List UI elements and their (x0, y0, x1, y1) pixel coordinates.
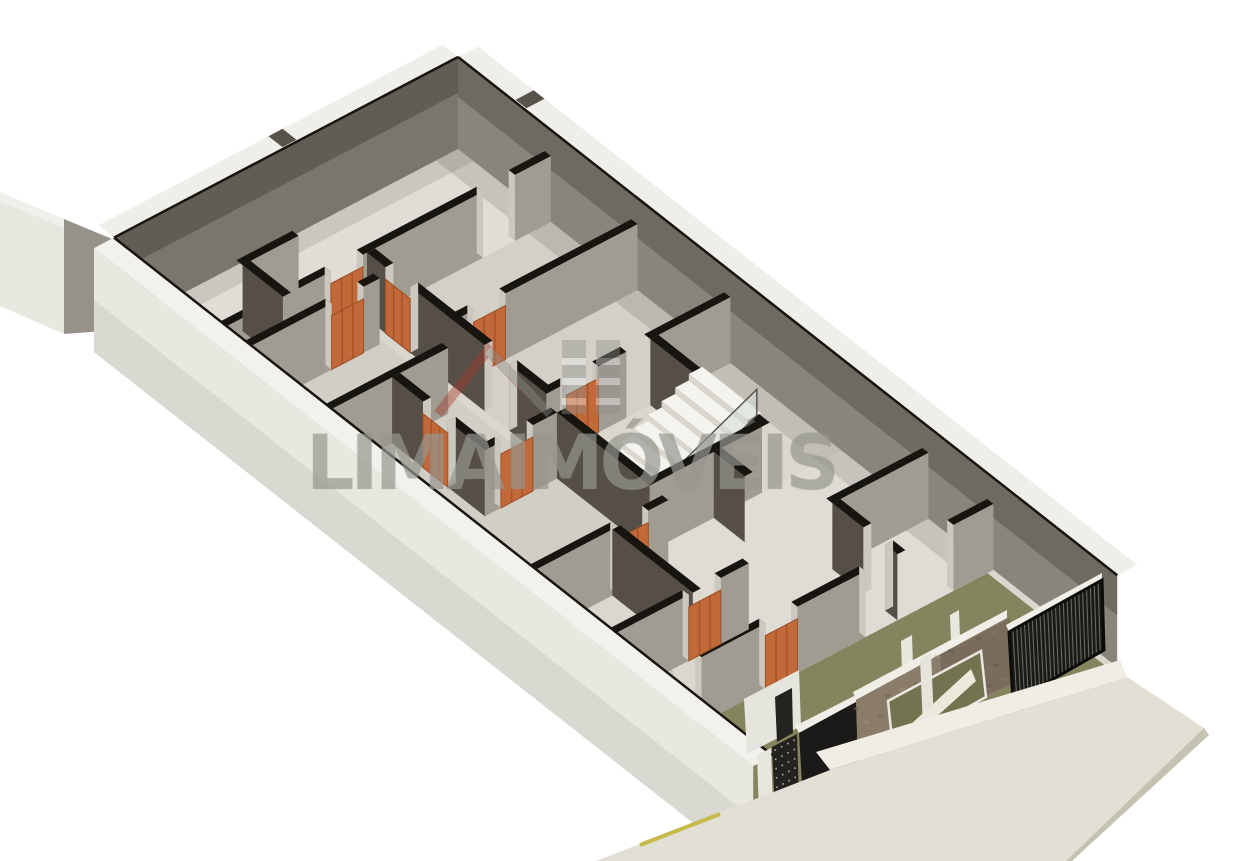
door-jamb (477, 187, 483, 258)
stone-speckle (878, 715, 884, 718)
door-jamb (947, 520, 953, 591)
perforation-dot (794, 767, 796, 769)
perforation-dot (782, 765, 784, 767)
partition-wall-face (364, 278, 380, 352)
perforation-dot (794, 758, 796, 760)
perforation-dot (776, 786, 778, 788)
perforation-dot (775, 768, 777, 770)
floorplan-render-image: LIMA IMÓVEIS (0, 0, 1233, 861)
perforation-dot (787, 752, 789, 754)
stone-speckle (864, 721, 870, 724)
perforation-dot (794, 777, 796, 779)
door-jamb (410, 283, 418, 353)
perforation-dot (788, 780, 790, 782)
perforation-dot (794, 749, 796, 751)
door-jamb (885, 540, 893, 610)
perforation-dot (775, 759, 777, 761)
perforation-dot (782, 783, 784, 785)
perforation-dot (788, 761, 790, 763)
stone-speckle (899, 688, 905, 691)
perforation-dot (787, 743, 789, 745)
perforation-dot (776, 777, 778, 779)
front-door-opening (775, 688, 793, 742)
door-jamb (509, 170, 515, 241)
door-jamb (859, 566, 865, 637)
perforation-dot (782, 774, 784, 776)
isometric-floorplan-scene (0, 0, 1233, 861)
perforation-dot (788, 771, 790, 773)
door-jamb (325, 299, 331, 370)
door-jamb (495, 437, 501, 508)
stone-speckle (853, 707, 859, 710)
door-jamb (448, 417, 456, 487)
perforation-dot (793, 739, 795, 741)
stone-speckle (934, 655, 940, 658)
partition-wall-face (533, 413, 557, 492)
door-jamb (485, 341, 493, 411)
door-jamb (683, 590, 689, 661)
door-jamb (509, 360, 517, 430)
stone-speckle (885, 694, 891, 697)
perforation-dot (781, 746, 783, 748)
perforation-dot (781, 755, 783, 757)
perforation-dot (775, 749, 777, 751)
door-jamb (759, 619, 765, 690)
